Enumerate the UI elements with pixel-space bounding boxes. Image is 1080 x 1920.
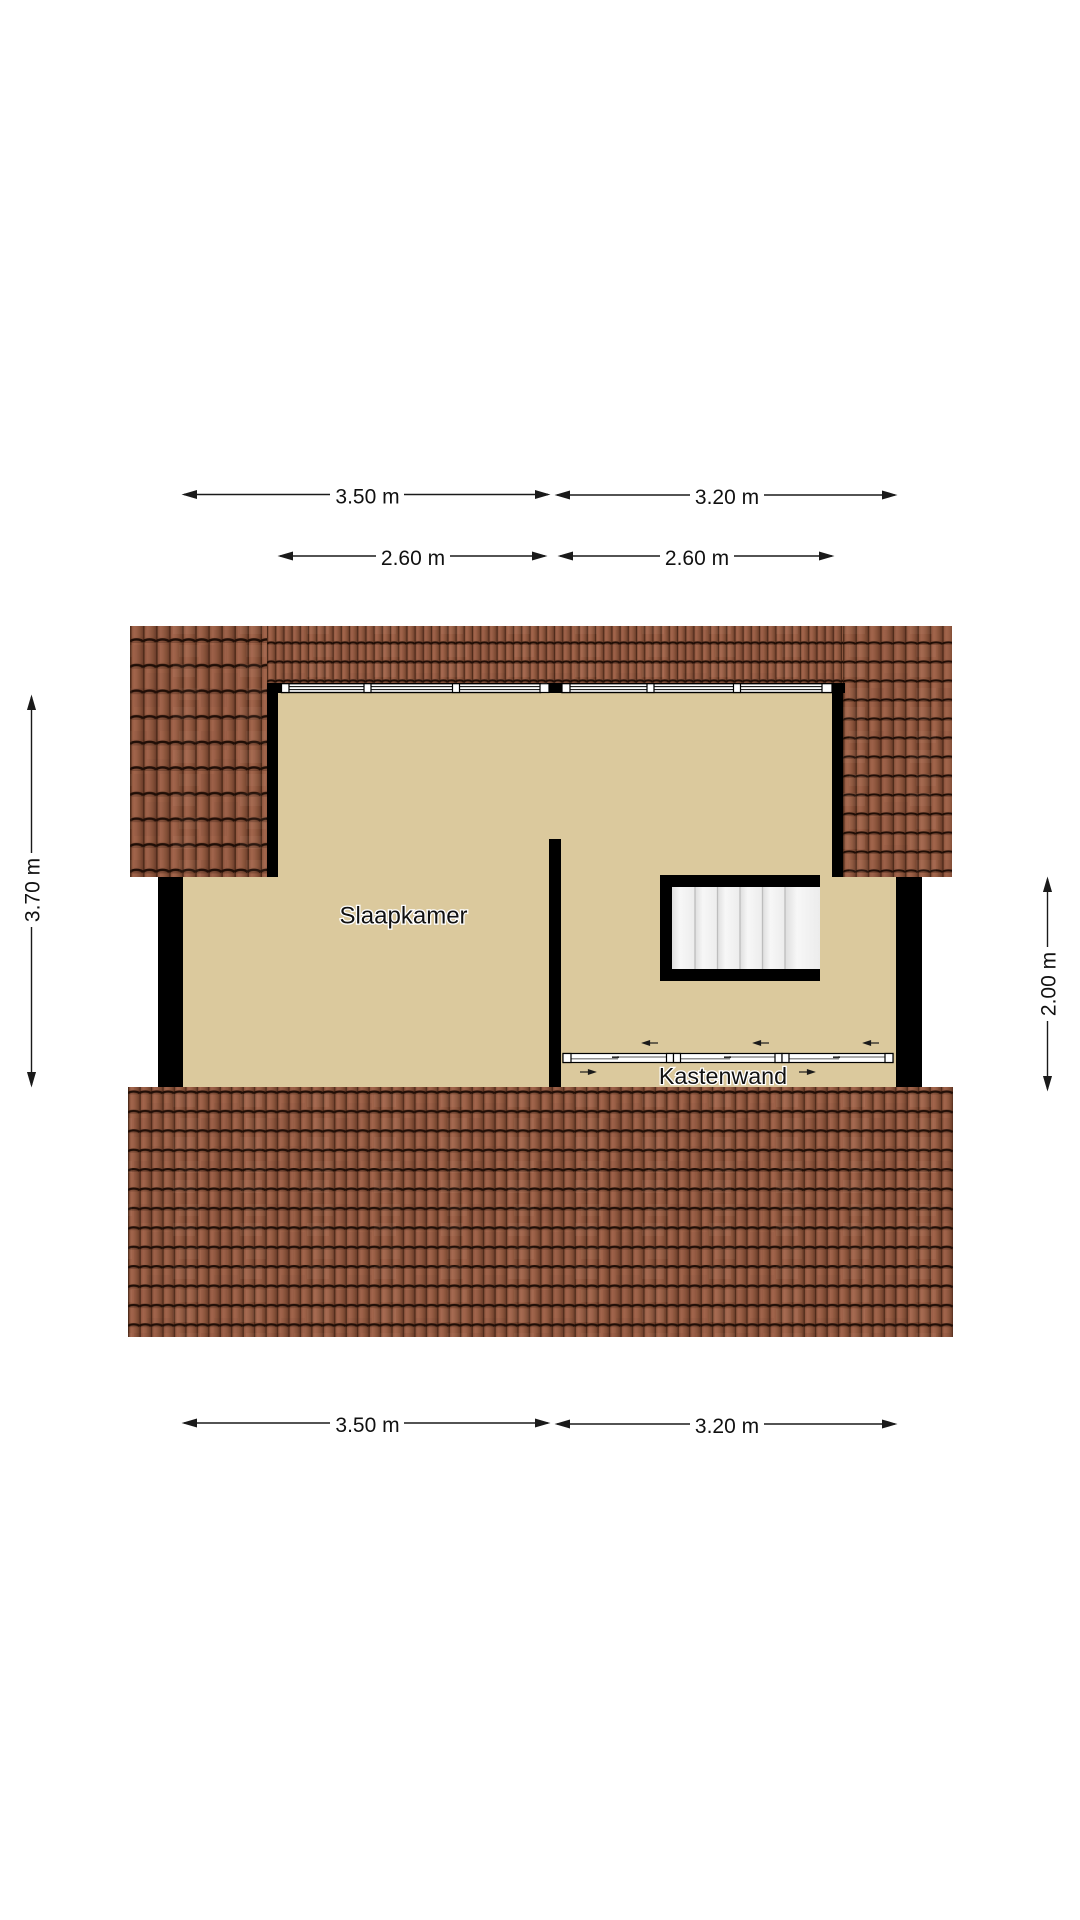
svg-text:2.00 m: 2.00 m [1038, 952, 1061, 1016]
svg-text:3.50 m: 3.50 m [335, 1414, 399, 1437]
svg-text:Kastenwand: Kastenwand [659, 1063, 787, 1089]
svg-text:3.70 m: 3.70 m [22, 858, 45, 922]
svg-text:2.60 m: 2.60 m [381, 547, 445, 570]
svg-text:3.50 m: 3.50 m [335, 486, 399, 509]
svg-text:2.60 m: 2.60 m [665, 547, 729, 570]
svg-text:Slaapkamer: Slaapkamer [339, 903, 467, 930]
svg-text:3.20 m: 3.20 m [695, 486, 759, 509]
svg-text:3.20 m: 3.20 m [695, 1415, 759, 1438]
